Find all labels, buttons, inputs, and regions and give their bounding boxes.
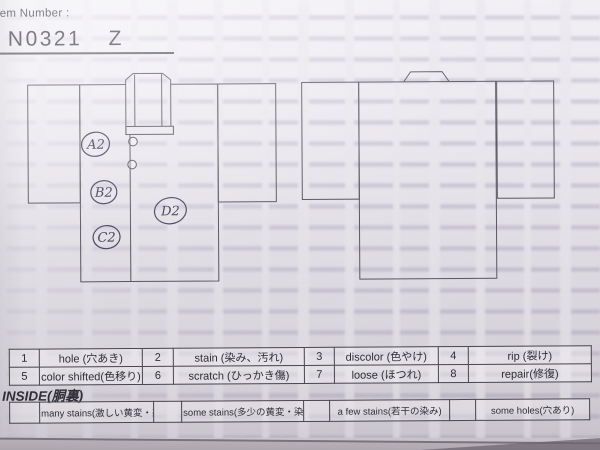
- defect-code-8: 8: [438, 364, 468, 382]
- inside-table-row: many stains(激しい黄変・染み) some stains(多少の黄変・…: [10, 399, 590, 424]
- defect-label-scratch: scratch (ひっかき傷): [173, 365, 304, 384]
- back-left-sleeve: [302, 82, 360, 199]
- front-right-sleeve: [218, 84, 277, 202]
- inside-option-some-stains: some stains(多少の黄変・染み): [182, 400, 304, 422]
- defect-annotation-labels: A2 B2 C2 D2: [86, 137, 180, 246]
- defect-label-rip: rip (裂け): [468, 346, 591, 365]
- inside-checkbox-cell: [154, 401, 182, 422]
- defect-table-row: 5 color shifted(色移り) 6 scratch (ひっかき傷) 7…: [9, 364, 591, 386]
- back-body: [359, 81, 497, 279]
- defect-label-discolor: discolor (色やけ): [334, 347, 438, 366]
- defect-label-stain: stain (染み、汚れ): [173, 347, 304, 366]
- back-view-diagram: [302, 71, 555, 280]
- defect-code-2: 2: [142, 348, 173, 366]
- inside-option-a-few-stains: a few stains(若干の染み): [330, 400, 450, 422]
- collar-band: [126, 126, 174, 134]
- defect-code-3: 3: [304, 347, 334, 365]
- annotation-label-c2: C2: [97, 231, 115, 246]
- front-opening-line: [130, 135, 131, 281]
- defect-code-4: 4: [438, 346, 468, 364]
- defect-code-6: 6: [142, 366, 173, 384]
- annotation-label-b2: B2: [94, 186, 113, 201]
- inside-checkbox-cell: [450, 399, 476, 420]
- defect-code-5: 5: [9, 367, 39, 385]
- back-right-sleeve: [497, 81, 555, 198]
- front-view-diagram: [28, 73, 277, 283]
- annotation-label-a2: A2: [86, 138, 105, 153]
- defect-label-loose: loose (ほつれ): [334, 365, 438, 384]
- inside-checkbox-cell: [10, 402, 40, 423]
- defect-code-7: 7: [304, 365, 334, 383]
- paper-sheet: em Number : N0321 Z: [0, 0, 600, 450]
- annotation-label-d2: D2: [160, 204, 180, 219]
- front-body-outline: [80, 84, 219, 282]
- defect-code-1: 1: [9, 349, 39, 367]
- back-collar: [404, 72, 450, 82]
- defect-label-hole: hole (穴あき): [39, 348, 142, 367]
- front-left-sleeve: [28, 85, 81, 203]
- defect-label-repair: repair(修復): [468, 364, 591, 383]
- inside-option-many-stains: many stains(激しい黄変・染み): [40, 401, 154, 423]
- snap-button-top: [129, 137, 138, 146]
- inside-option-some-holes: some holes(穴あり): [476, 399, 590, 421]
- sheet-content: em Number : N0321 Z: [0, 0, 600, 450]
- inside-checkbox-cell: [304, 400, 330, 421]
- collar-outline: [126, 73, 171, 134]
- defect-label-color-shifted: color shifted(色移り): [39, 366, 142, 385]
- collar-inner-lines: [135, 74, 162, 126]
- photographed-document: em Number : N0321 Z: [0, 0, 600, 450]
- defect-code-table: 1 hole (穴あき) 2 stain (染み、汚れ) 3 discolor …: [9, 345, 592, 386]
- inside-condition-table: many stains(激しい黄変・染み) some stains(多少の黄変・…: [9, 398, 590, 424]
- snap-button-bottom: [128, 160, 137, 169]
